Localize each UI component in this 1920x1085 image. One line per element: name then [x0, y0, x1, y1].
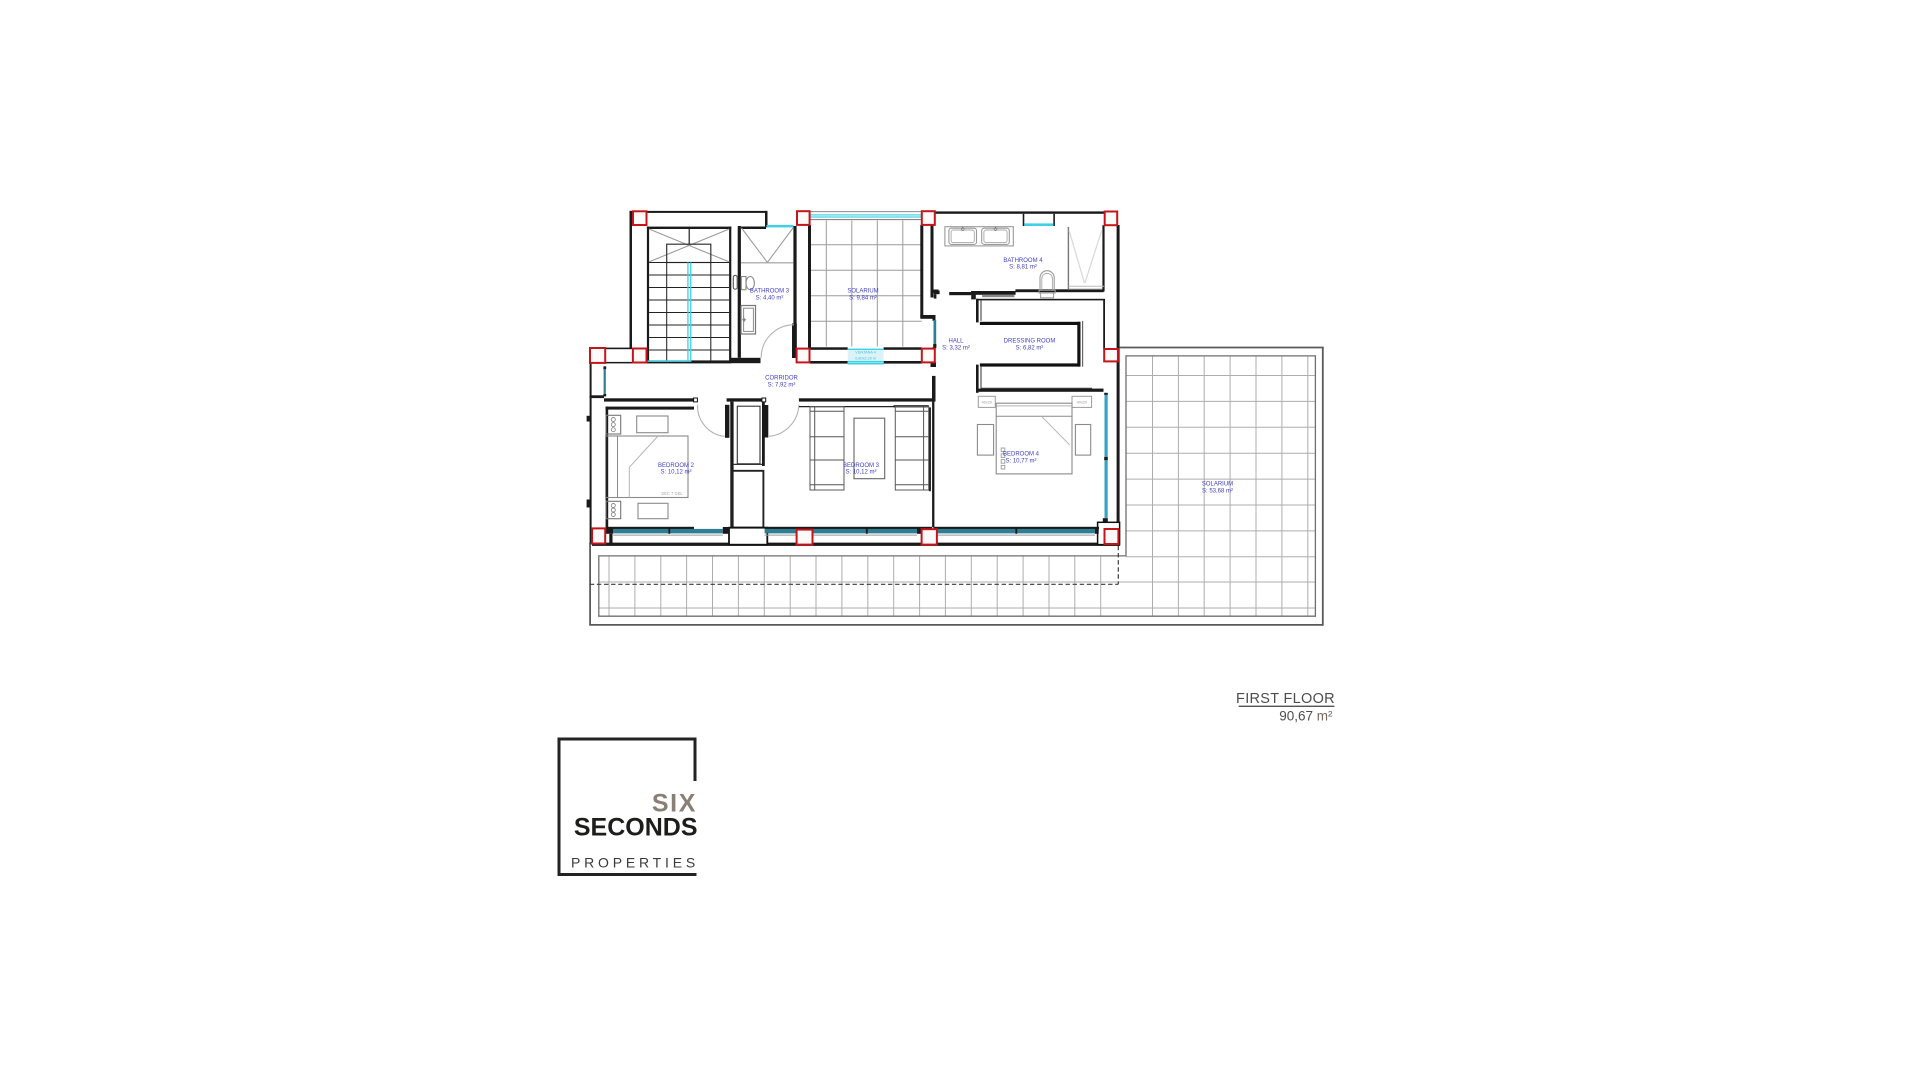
svg-text:40x20: 40x20	[982, 400, 992, 404]
svg-text:S: 10,77 m²: S: 10,77 m²	[1005, 458, 1036, 464]
svg-text:SOLARIUM: SOLARIUM	[847, 289, 878, 295]
svg-text:SOLARIUM: SOLARIUM	[1202, 482, 1233, 488]
svg-text:BEDROOM 3: BEDROOM 3	[843, 463, 880, 469]
svg-text:S: 53,68 m²: S: 53,68 m²	[1202, 488, 1233, 494]
svg-text:CORRIDOR: CORRIDOR	[765, 376, 798, 382]
svg-text:0,80x2,20 m: 0,80x2,20 m	[855, 357, 876, 361]
svg-text:S: 10,12 m²: S: 10,12 m²	[660, 470, 691, 476]
svg-text:FIRST FLOOR: FIRST FLOOR	[1236, 691, 1335, 707]
svg-text:S: 3,32 m²: S: 3,32 m²	[942, 345, 970, 351]
svg-text:S: 9,84 m²: S: 9,84 m²	[849, 295, 877, 301]
svg-text:90,67 m²: 90,67 m²	[1279, 709, 1333, 724]
svg-text:SECONDS: SECONDS	[574, 814, 698, 842]
svg-text:BEDROOM 2: BEDROOM 2	[658, 463, 695, 469]
svg-text:S: 10,12 m²: S: 10,12 m²	[845, 470, 876, 476]
svg-text:BATHROOM 3: BATHROOM 3	[750, 289, 790, 295]
svg-text:DRESSING ROOM: DRESSING ROOM	[1004, 339, 1056, 345]
svg-text:VENTANA 4: VENTANA 4	[855, 351, 876, 355]
svg-text:PROPERTIES: PROPERTIES	[571, 854, 699, 870]
svg-text:S: 6,82 m²: S: 6,82 m²	[1016, 345, 1044, 351]
svg-text:BEDROOM 4: BEDROOM 4	[1003, 452, 1040, 458]
svg-text:HALL: HALL	[948, 339, 964, 345]
svg-text:S: 8,81 m²: S: 8,81 m²	[1009, 265, 1037, 271]
svg-text:40x20: 40x20	[1077, 400, 1087, 404]
svg-text:SEC 7 DEL: SEC 7 DEL	[661, 491, 683, 496]
svg-text:S: 4,40 m²: S: 4,40 m²	[756, 295, 784, 301]
svg-text:S: 7,92 m²: S: 7,92 m²	[768, 382, 796, 388]
svg-text:BATHROOM 4: BATHROOM 4	[1003, 258, 1043, 264]
